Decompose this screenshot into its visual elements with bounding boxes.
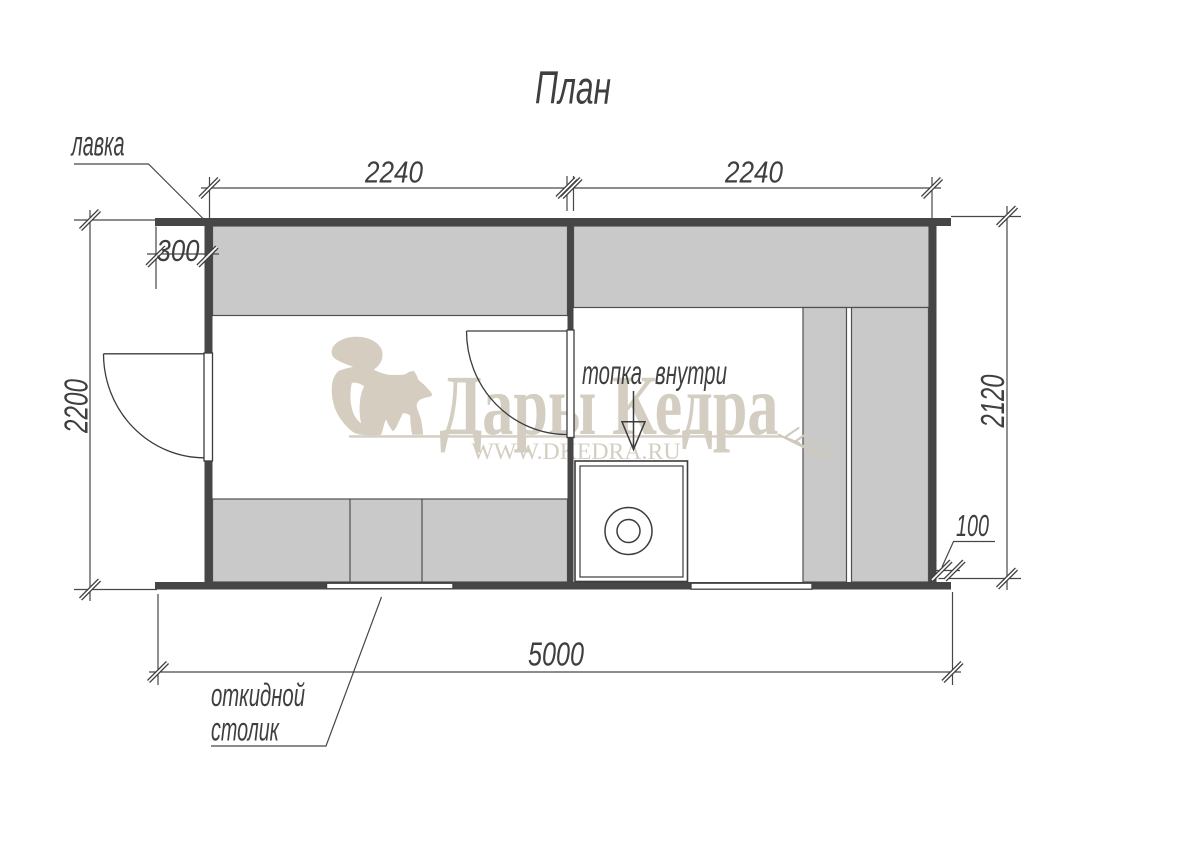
- svg-text:2200: 2200: [58, 379, 95, 434]
- svg-text:2240: 2240: [724, 155, 783, 190]
- svg-text:300: 300: [157, 233, 200, 268]
- svg-text:100: 100: [956, 508, 989, 543]
- svg-text:План: План: [535, 62, 611, 114]
- svg-text:столик: столик: [211, 711, 280, 748]
- svg-text:WWW.DKEDRA.RU: WWW.DKEDRA.RU: [472, 439, 681, 464]
- svg-text:5000: 5000: [528, 636, 584, 673]
- svg-text:лавка: лавка: [70, 125, 124, 164]
- svg-text:2240: 2240: [364, 155, 423, 190]
- svg-text:топка: топка: [582, 354, 642, 391]
- svg-text:внутри: внутри: [655, 354, 727, 391]
- svg-text:откидной: откидной: [211, 677, 305, 713]
- svg-text:2120: 2120: [974, 374, 1011, 428]
